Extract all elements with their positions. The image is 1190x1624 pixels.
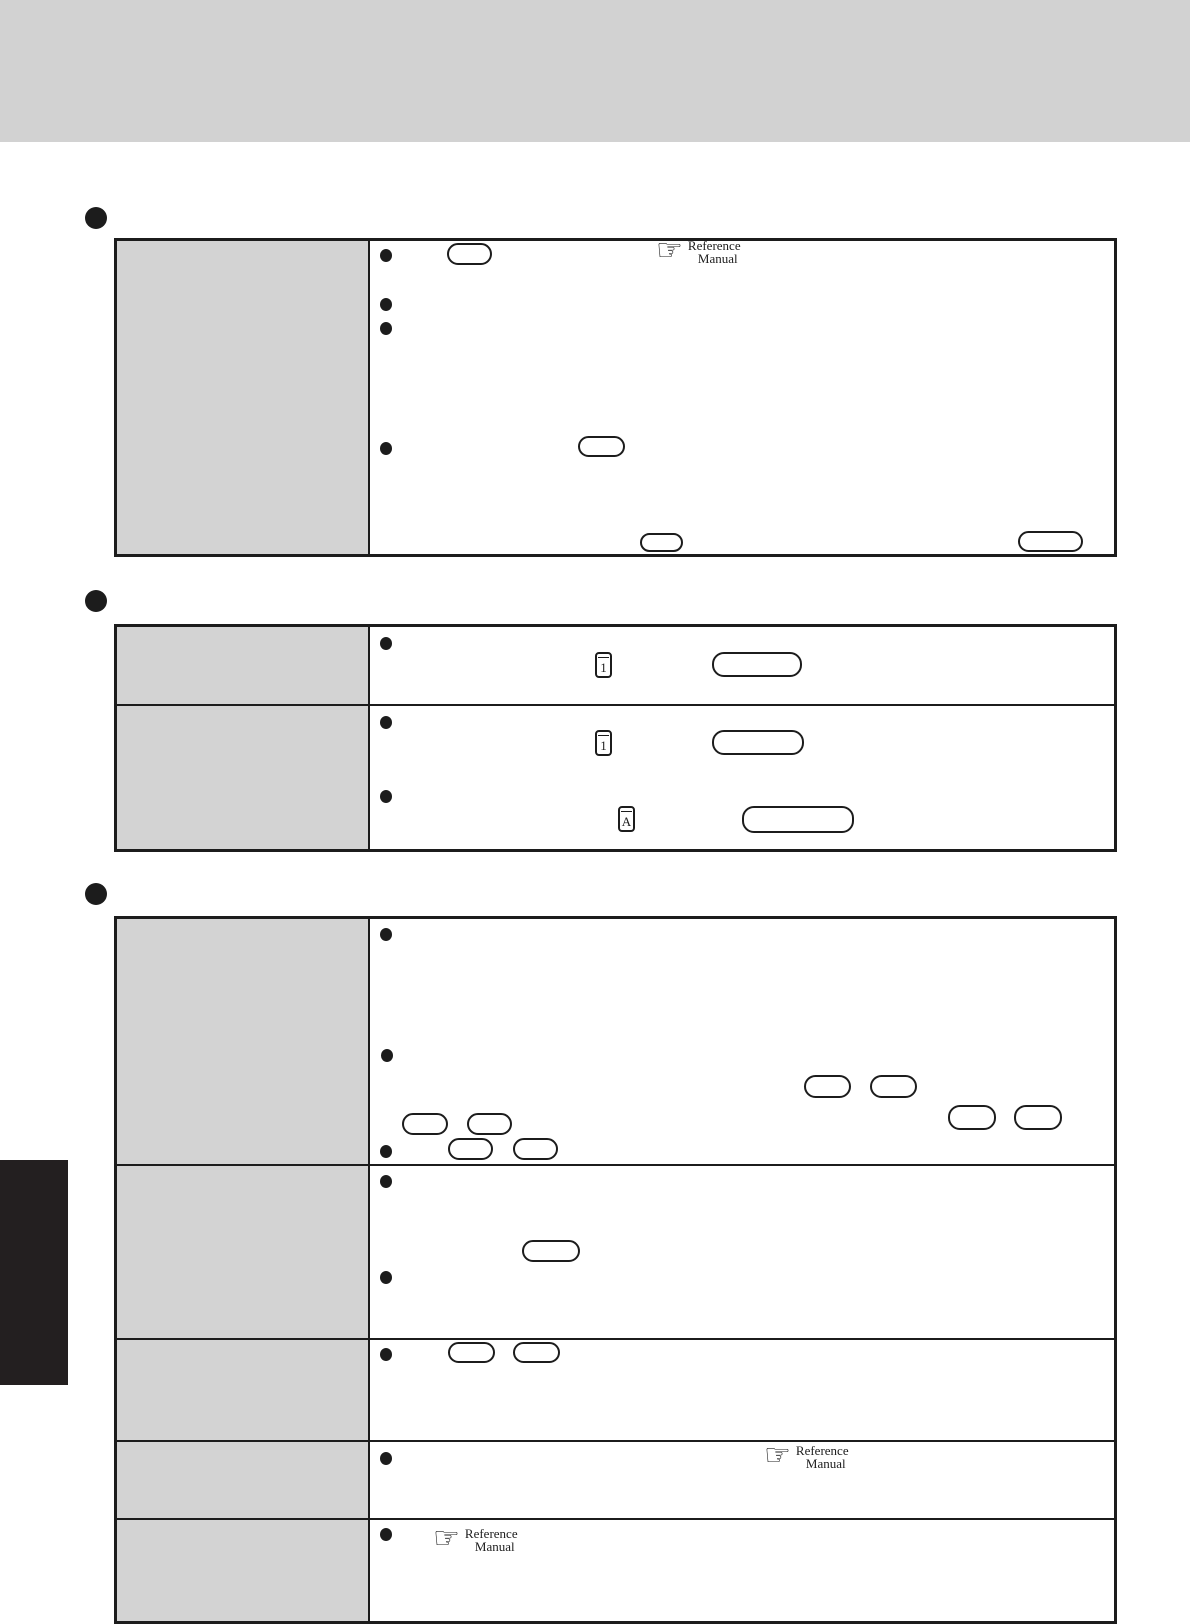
list-bullet-icon [380,249,392,262]
list-bullet-icon [381,1049,393,1062]
keycap-top-line [598,735,609,736]
section-2-bullet-icon [85,590,107,612]
list-bullet-icon [380,1175,392,1188]
keycap-top-line [621,811,632,812]
list-bullet-icon [380,298,392,311]
table-2-column-divider [368,624,370,852]
reference-manual-link: ☞ Reference Manual [656,238,741,265]
rounded-button-icon [1018,531,1083,552]
reference-manual-link: ☞ Reference Manual [433,1526,518,1553]
keycap-a-icon: A [618,806,635,832]
page-edge-tab [0,1160,68,1385]
rounded-button-icon [467,1113,512,1135]
section-1-bullet-icon [85,207,107,229]
list-bullet-icon [380,637,392,650]
table-1 [114,238,1117,557]
rounded-button-icon [578,436,625,457]
rounded-button-icon [804,1075,851,1098]
list-bullet-icon [380,1271,392,1284]
header-band [0,0,1190,142]
keycap-1-icon: 1 [595,652,612,678]
reference-manual-link: ☞ Reference Manual [764,1443,849,1470]
section-3-bullet-icon [85,883,107,905]
rounded-button-icon [448,1342,495,1363]
rounded-button-icon [948,1105,996,1130]
rounded-button-icon [1014,1105,1062,1130]
rounded-button-icon [742,806,854,833]
keycap-label: 1 [597,659,610,676]
list-bullet-icon [380,1528,392,1541]
keycap-1-icon: 1 [595,730,612,756]
table-3-row-divider [114,1338,1117,1340]
list-bullet-icon [380,322,392,335]
rounded-button-icon [522,1240,580,1262]
list-bullet-icon [380,1145,392,1158]
rounded-button-icon [447,243,492,265]
rounded-button-icon [513,1138,558,1160]
reference-manual-label: Reference Manual [796,1443,849,1470]
reference-manual-label: Reference Manual [465,1526,518,1553]
list-bullet-icon [380,716,392,729]
rounded-button-icon [712,652,802,677]
pointing-hand-icon: ☞ [764,1443,791,1469]
reference-manual-label: Reference Manual [688,238,741,265]
table-1-column-divider [368,238,370,557]
list-bullet-icon [380,1452,392,1465]
list-bullet-icon [380,790,392,803]
list-bullet-icon [380,928,392,941]
pointing-hand-icon: ☞ [433,1526,460,1552]
document-page: ☞ Reference Manual 1 1 A [0,0,1190,1624]
table-3-row-divider [114,1164,1117,1166]
table-3-row-divider [114,1440,1117,1442]
rounded-button-icon [870,1075,917,1098]
list-bullet-icon [380,1348,392,1361]
reference-manual-line2: Manual [796,1458,849,1471]
table-2-row-divider [114,704,1117,706]
keycap-label: A [620,813,633,830]
reference-manual-line2: Manual [465,1541,518,1554]
rounded-button-icon [640,533,683,552]
table-2 [114,624,1117,852]
keycap-top-line [598,657,609,658]
table-3-row-divider [114,1518,1117,1520]
rounded-button-icon [513,1342,560,1363]
keycap-label: 1 [597,737,610,754]
list-bullet-icon [380,442,392,455]
pointing-hand-icon: ☞ [656,238,683,264]
rounded-button-icon [402,1113,448,1135]
rounded-button-icon [448,1138,493,1160]
reference-manual-line2: Manual [688,253,741,266]
rounded-button-icon [712,730,804,755]
